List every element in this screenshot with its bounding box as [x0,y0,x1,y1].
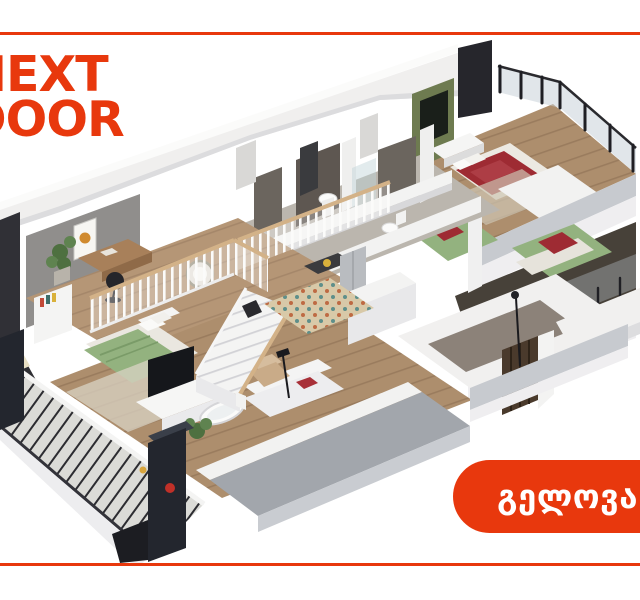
roof-edge [458,40,492,118]
bottom-divider [0,563,640,566]
kettle [323,259,331,267]
cut-wall-edge [0,212,20,342]
location-badge-label: გელოვანი [497,477,640,516]
top-divider [0,32,640,35]
corner-column [0,329,24,430]
red-stool [165,483,175,493]
planter [140,467,147,474]
location-badge[interactable]: გელოვანი [453,460,640,533]
vanity-mirror [300,141,318,196]
